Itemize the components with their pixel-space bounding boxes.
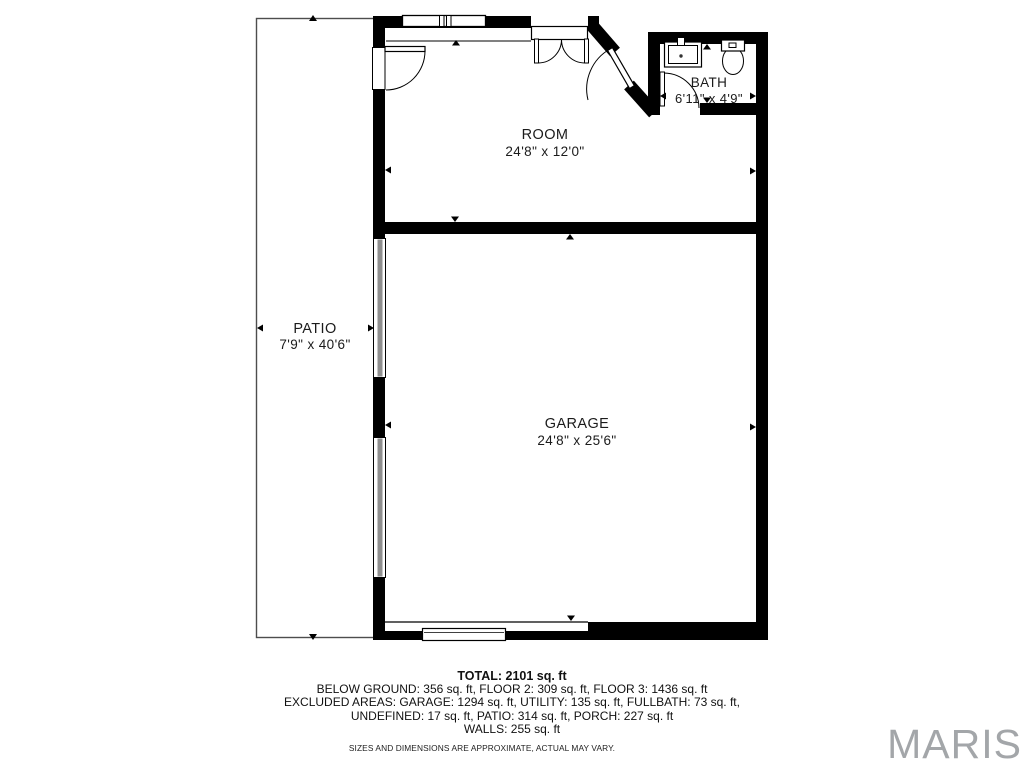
summary-line-excluded: EXCLUDED AREAS: GARAGE: 1294 sq. ft, UTI… xyxy=(0,696,1024,709)
bath-label: BATH xyxy=(691,75,728,90)
disclaimer-text: SIZES AND DIMENSIONS ARE APPROXIMATE, AC… xyxy=(0,743,979,753)
sink-icon xyxy=(665,38,702,68)
summary-line-walls: WALLS: 255 sq. ft xyxy=(0,723,1024,736)
maris-watermark: MARIS xyxy=(887,721,1022,768)
patio-label: PATIO xyxy=(293,321,336,337)
patio-dimensions: 7'9" x 40'6" xyxy=(279,337,350,352)
walls xyxy=(373,16,768,640)
room-dimensions: 24'8" x 12'0" xyxy=(505,144,584,159)
left-entry-door xyxy=(373,47,426,91)
window-icon xyxy=(403,16,486,27)
garage-label: GARAGE xyxy=(545,416,609,432)
summary-line-undefined: UNDEFINED: 17 sq. ft, PATIO: 314 sq. ft,… xyxy=(0,710,1024,723)
french-door xyxy=(532,27,589,64)
bath-dimensions: 6'11" x 4'9" xyxy=(675,91,743,106)
toilet-icon xyxy=(722,40,745,75)
room-label: ROOM xyxy=(522,127,569,143)
floor-plan-page: PATIO 7'9" x 40'6" ROOM 24'8" x 12'0" BA… xyxy=(0,0,1024,768)
area-summary: TOTAL: 2101 sq. ft BELOW GROUND: 356 sq.… xyxy=(0,670,1024,753)
garage-dimensions: 24'8" x 25'6" xyxy=(537,433,616,448)
floor-plan-drawing: PATIO 7'9" x 40'6" ROOM 24'8" x 12'0" BA… xyxy=(0,0,1024,768)
